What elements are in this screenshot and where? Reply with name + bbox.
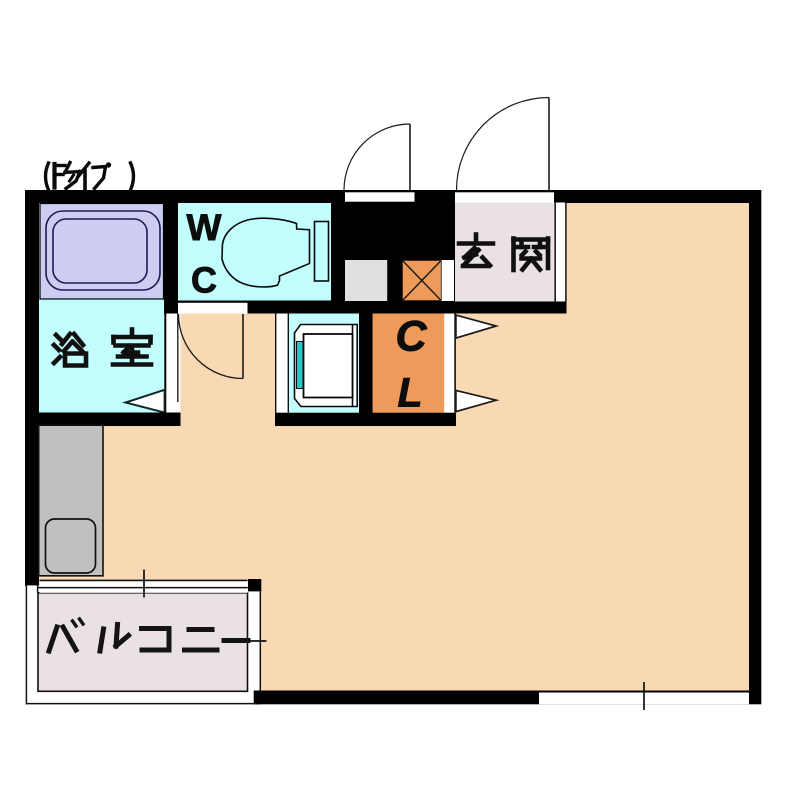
svg-text:C: C	[191, 260, 217, 301]
svg-text:C: C	[395, 313, 427, 361]
svg-text:W: W	[187, 207, 222, 248]
svg-text:L: L	[397, 370, 422, 416]
